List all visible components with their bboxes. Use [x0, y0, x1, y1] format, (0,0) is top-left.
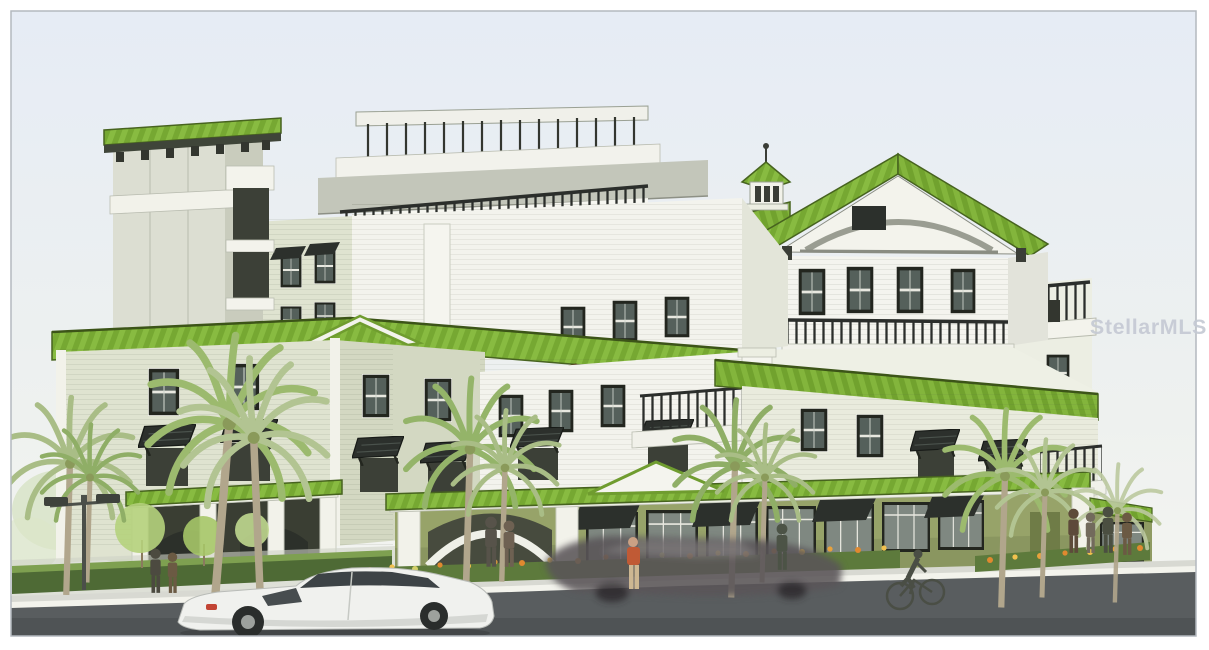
rendering-page: StellarMLS — [0, 0, 1209, 650]
attic-vent — [852, 206, 886, 230]
rendering-scene — [0, 11, 1196, 641]
stellar-mls-watermark: StellarMLS — [1090, 315, 1207, 339]
tower-balcony-notch — [226, 166, 274, 310]
balcony-end-bracket — [1046, 300, 1060, 322]
architectural-rendering: StellarMLS — [0, 0, 1209, 650]
taillight — [206, 604, 217, 610]
